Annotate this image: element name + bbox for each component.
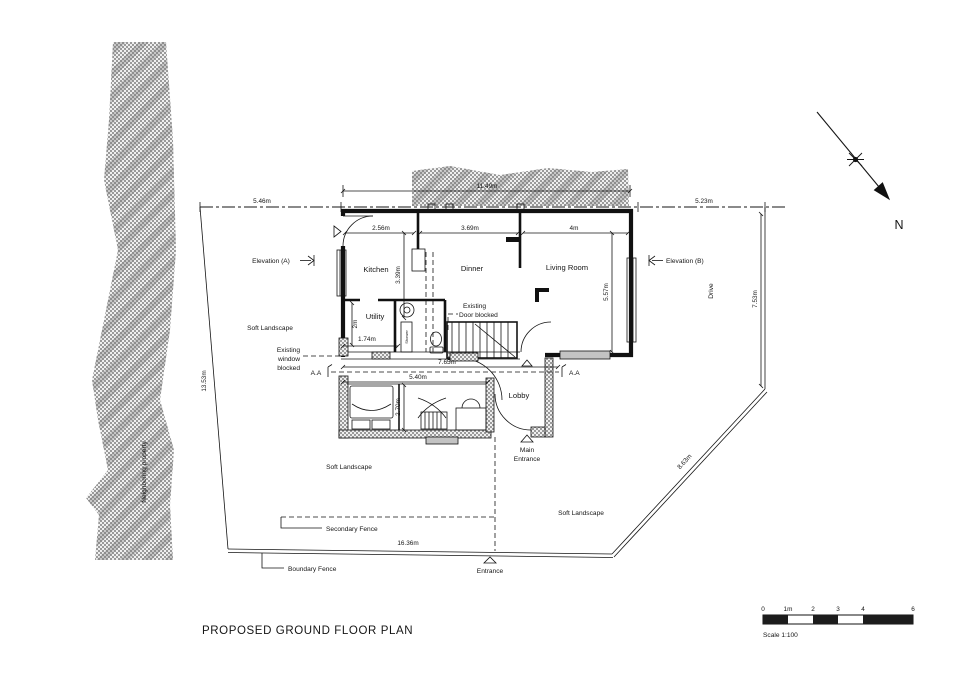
chimney-breast <box>412 249 425 271</box>
hall-living-door-arc <box>521 322 551 352</box>
drying-rack <box>418 398 447 429</box>
scale-tick-3: 3 <box>836 606 840 613</box>
dim-kitchen-d: 3.39m <box>395 266 402 284</box>
secondary-fence-label: Secondary Fence <box>326 526 378 533</box>
annotations: Elevation (A) Elevation (B) Soft Landsca… <box>247 255 715 575</box>
dim-utility-d: 2m <box>352 320 359 329</box>
dim-dinner-w: 3.69m <box>461 225 479 232</box>
existing-window-line3: blocked <box>277 365 300 372</box>
entrance-label: Entrance <box>477 568 504 575</box>
north-label: N <box>894 218 903 232</box>
existing-window-line2: window <box>277 356 300 363</box>
neighbor-strip-stripes <box>86 42 176 560</box>
north-arrow: N <box>817 112 904 232</box>
scale-seg-1 <box>763 615 788 624</box>
existing-door-line1: Existing <box>463 303 486 310</box>
boundary-diagonal-line-2 <box>614 392 767 557</box>
neighbor-block-stripes <box>412 166 629 206</box>
bathtub <box>350 386 393 429</box>
lobby-label: Lobby <box>509 391 530 400</box>
scale-label: Scale 1:100 <box>763 632 798 639</box>
section-aa-right: A.A <box>569 370 580 377</box>
main-entrance-line1: Main <box>520 447 535 454</box>
north-arrow-head <box>875 183 890 199</box>
pier-living-left <box>535 288 549 302</box>
main-entrance-line2: Entrance <box>514 456 541 463</box>
floor-plan-drawing: Neighboring property 5.46m 5.23m 11.49m … <box>0 0 970 687</box>
lobby-triangle-marker <box>522 360 532 366</box>
section-flag-left <box>328 365 332 378</box>
scale-tick-2: 2 <box>811 606 815 613</box>
scale-bar: 0 1m 2 3 4 6 Scale 1:100 <box>761 606 915 639</box>
lobby-wall-left <box>486 378 494 432</box>
stairs-lobby-door-arc <box>460 358 502 400</box>
kitchen-label: Kitchen <box>363 265 388 274</box>
neighboring-property-label: Neighboring property <box>141 441 148 503</box>
scale-tick-6: 6 <box>911 606 915 613</box>
dim-annex-d: 2.70m <box>395 398 402 416</box>
neighboring-property-strip: Neighboring property <box>86 42 176 560</box>
kitchen-vent-triangle <box>334 226 341 237</box>
lobby-wall-right <box>545 358 553 437</box>
annex-wall-bottom <box>339 430 491 438</box>
living-room-label: Living Room <box>546 263 588 272</box>
toilet <box>430 332 443 353</box>
section-flag-right <box>562 365 566 378</box>
dim-site-top-left: 5.46m <box>253 198 271 205</box>
boundary-fence-leader <box>262 553 284 568</box>
dinner-label: Dinner <box>461 264 484 273</box>
annex-wall-left <box>339 376 348 438</box>
dim-house-top: 11.49m <box>477 183 498 190</box>
dim-site-diagonal: 8.63m <box>676 453 693 471</box>
blocked-segment-1 <box>372 352 390 359</box>
shower-tray: Shower <box>401 322 412 352</box>
scale-tick-4: 4 <box>861 606 865 613</box>
boundary-fence-label: Boundary Fence <box>288 566 337 573</box>
dim-site-top-right: 5.23m <box>695 198 713 205</box>
dim-site-right: 7.53m <box>752 290 759 308</box>
dim-kitchen-w: 2.56m <box>372 225 390 232</box>
entrance-triangle <box>484 557 496 563</box>
window-living-bottom <box>560 351 610 359</box>
dim-living-w: 4m <box>570 225 579 232</box>
pier-dinner-right <box>506 237 520 242</box>
existing-door-line2: Door blocked <box>459 312 498 319</box>
soft-landscape-label-1: Soft Landscape <box>247 325 293 332</box>
dim-hall-w: 7.65m <box>438 359 456 366</box>
house: Shower <box>334 204 636 444</box>
drive-label: Drive <box>708 283 715 299</box>
scale-seg-2 <box>813 615 838 624</box>
boundary-diagonal-line-1 <box>612 389 765 554</box>
dim-site-left: 13.53m <box>201 370 208 391</box>
lobby-wall-foot <box>531 427 545 437</box>
utility-label: Utility <box>366 312 385 321</box>
dim-site-bottom: 16.36m <box>397 540 418 547</box>
north-arrow-line <box>817 112 889 199</box>
secondary-fence-leader <box>281 517 322 528</box>
door-mat-steps <box>426 437 458 444</box>
dim-annex-w: 5.40m <box>409 374 427 381</box>
basin-chair <box>456 399 486 430</box>
kitchen-door-arc <box>343 216 373 246</box>
north-arrow-star <box>847 153 864 166</box>
shower-label: Shower <box>404 330 409 344</box>
soft-landscape-label-3: Soft Landscape <box>558 510 604 517</box>
section-aa-left: A.A <box>311 370 322 377</box>
blocked-window-left-wall <box>339 338 348 356</box>
washing-machine <box>400 303 414 317</box>
house-dimensions: 2.56m 3.69m 4m 3.39m 5.57m 2m 1.74m 7.65… <box>343 225 628 430</box>
page-title: PROPOSED GROUND FLOOR PLAN <box>202 625 413 637</box>
elevation-a-label: Elevation (A) <box>252 258 290 265</box>
scale-tick-1: 1m <box>784 606 793 613</box>
soft-landscape-label-2: Soft Landscape <box>326 464 372 471</box>
dim-utility-w: 1.74m <box>358 336 376 343</box>
scale-tick-0: 0 <box>761 606 765 613</box>
dim-living-d: 5.57m <box>603 283 610 301</box>
neighbor-block-top <box>412 166 629 206</box>
elevation-b-label: Elevation (B) <box>666 258 704 265</box>
scale-seg-3 <box>863 615 913 624</box>
floor-plan-page: Neighboring property 5.46m 5.23m 11.49m … <box>0 0 970 687</box>
existing-window-line1: Existing <box>277 347 300 354</box>
